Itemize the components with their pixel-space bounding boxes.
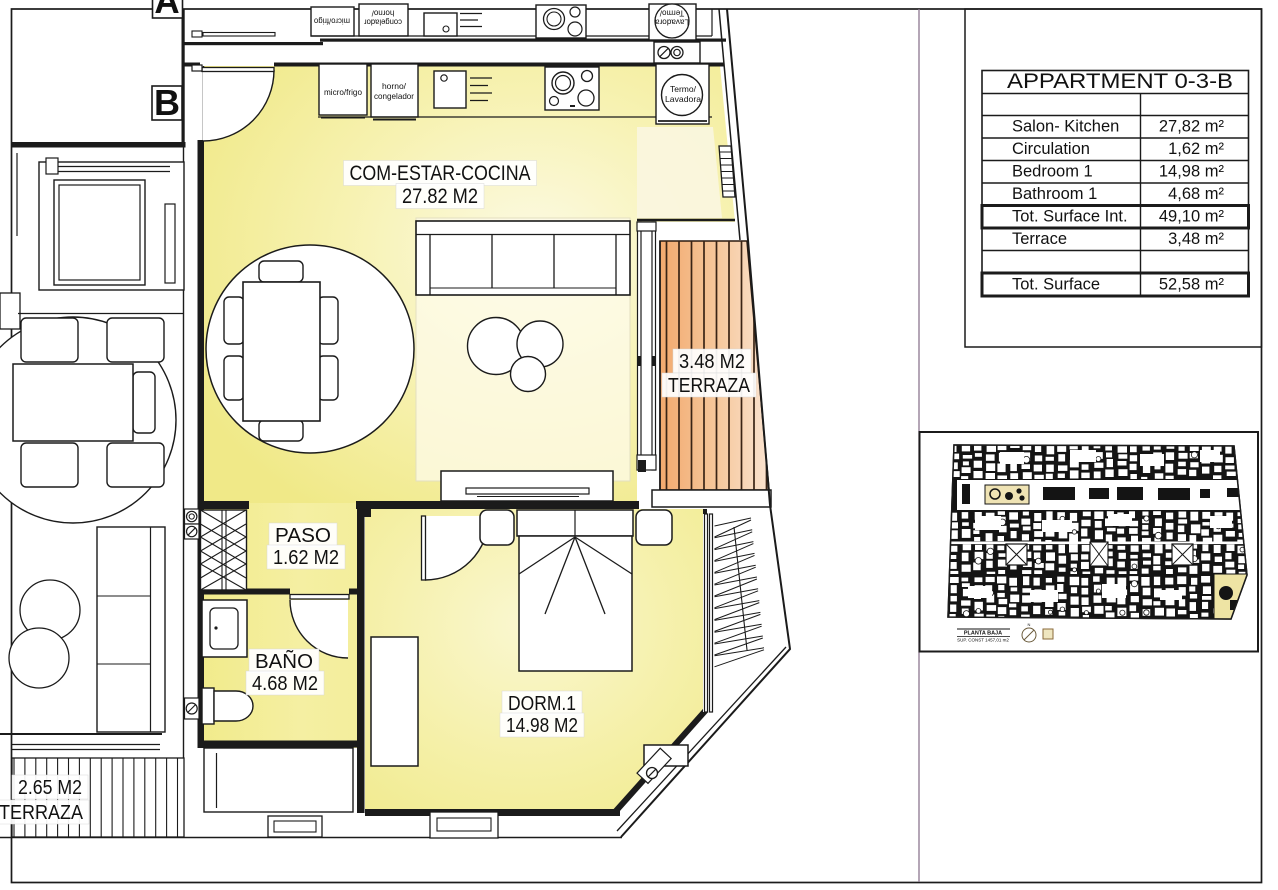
svg-text:PASO: PASO [275, 525, 331, 547]
svg-text:4,68 m²: 4,68 m² [1168, 185, 1224, 203]
svg-text:micro/frigo: micro/frigo [313, 17, 350, 26]
svg-text:DORM.1: DORM.1 [508, 693, 576, 715]
svg-text:SUP. CONST 1457,01 m2: SUP. CONST 1457,01 m2 [957, 638, 1009, 643]
svg-text:2.65 M2: 2.65 M2 [18, 777, 82, 799]
svg-text:14.98 M2: 14.98 M2 [506, 715, 578, 737]
svg-text:Lavadora: Lavadora [654, 18, 689, 27]
svg-text:14,98 m²: 14,98 m² [1159, 163, 1225, 181]
svg-text:4.68 M2: 4.68 M2 [252, 673, 318, 695]
svg-text:27.82 M2: 27.82 M2 [402, 185, 478, 208]
svg-text:Lavadora: Lavadora [665, 94, 701, 104]
svg-text:B: B [154, 82, 180, 123]
svg-text:3,48 m²: 3,48 m² [1168, 230, 1224, 248]
svg-text:Termo/: Termo/ [670, 84, 697, 94]
svg-text:Circulation: Circulation [1012, 140, 1090, 158]
svg-text:27,82 m²: 27,82 m² [1159, 118, 1225, 136]
svg-text:congelador: congelador [364, 18, 402, 27]
svg-text:49,10 m²: 49,10 m² [1159, 208, 1225, 226]
svg-text:horno/: horno/ [371, 9, 394, 18]
svg-text:1.62 M2: 1.62 M2 [273, 547, 339, 569]
svg-text:BAÑO: BAÑO [255, 649, 313, 673]
svg-text:congelador: congelador [374, 91, 414, 101]
svg-text:52,58 m²: 52,58 m² [1159, 276, 1225, 294]
svg-text:Termo/: Termo/ [659, 9, 684, 18]
svg-text:micro/frigo: micro/frigo [324, 87, 362, 97]
svg-text:Bathroom 1: Bathroom 1 [1012, 185, 1097, 203]
svg-text:3.48 M2: 3.48 M2 [679, 351, 745, 373]
svg-text:Bedroom 1: Bedroom 1 [1012, 163, 1093, 181]
svg-text:1,62 m²: 1,62 m² [1168, 140, 1224, 158]
svg-text:A: A [154, 0, 179, 21]
svg-text:Tot. Surface: Tot. Surface [1012, 276, 1100, 294]
svg-text:Salon- Kitchen: Salon- Kitchen [1012, 118, 1119, 136]
svg-text:TERRAZA: TERRAZA [0, 802, 84, 824]
svg-text:Terrace: Terrace [1012, 230, 1067, 248]
svg-text:horno/: horno/ [382, 81, 407, 91]
svg-text:Tot. Surface Int.: Tot. Surface Int. [1012, 208, 1128, 226]
svg-text:N: N [1028, 622, 1031, 627]
svg-text:TERRAZA: TERRAZA [668, 375, 751, 397]
svg-text:COM-ESTAR-COCINA: COM-ESTAR-COCINA [350, 162, 531, 185]
svg-text:PLANTA BAJA: PLANTA BAJA [964, 631, 1002, 637]
svg-text:APPARTMENT 0-3-B: APPARTMENT 0-3-B [1007, 70, 1233, 93]
